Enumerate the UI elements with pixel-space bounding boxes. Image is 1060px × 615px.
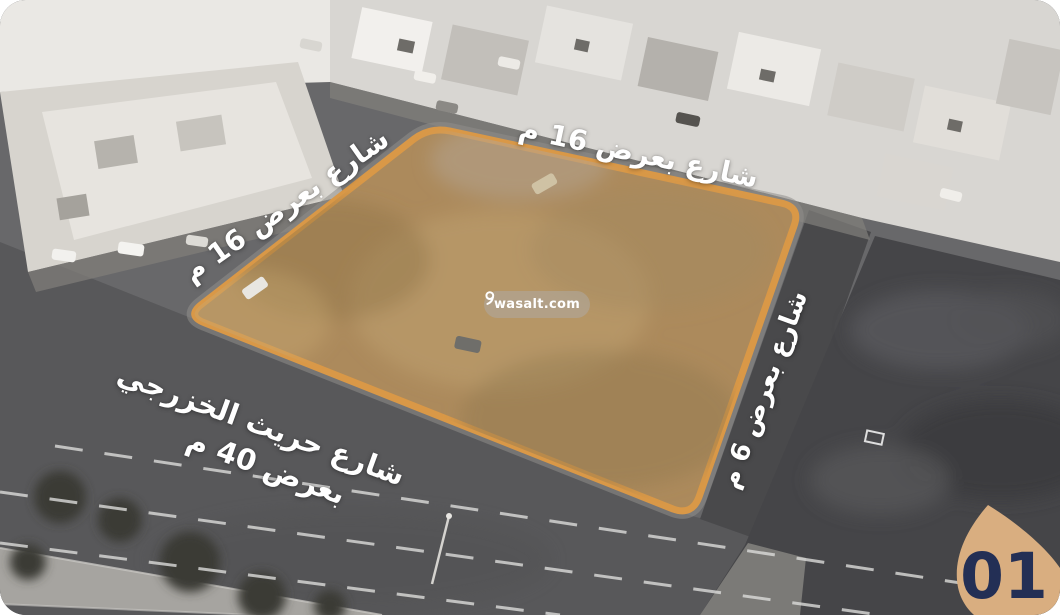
light-pole-head: [446, 513, 452, 519]
badge-number: 01: [960, 540, 1048, 613]
listing-photo: 01 شارع بعرض 16 م شارع بعرض 16 م شارع بع…: [0, 0, 1060, 615]
wasalt-watermark: wasalt.com: [484, 291, 590, 318]
wasalt-logo-icon: [484, 291, 495, 305]
wasalt-watermark-text: wasalt.com: [494, 297, 580, 312]
